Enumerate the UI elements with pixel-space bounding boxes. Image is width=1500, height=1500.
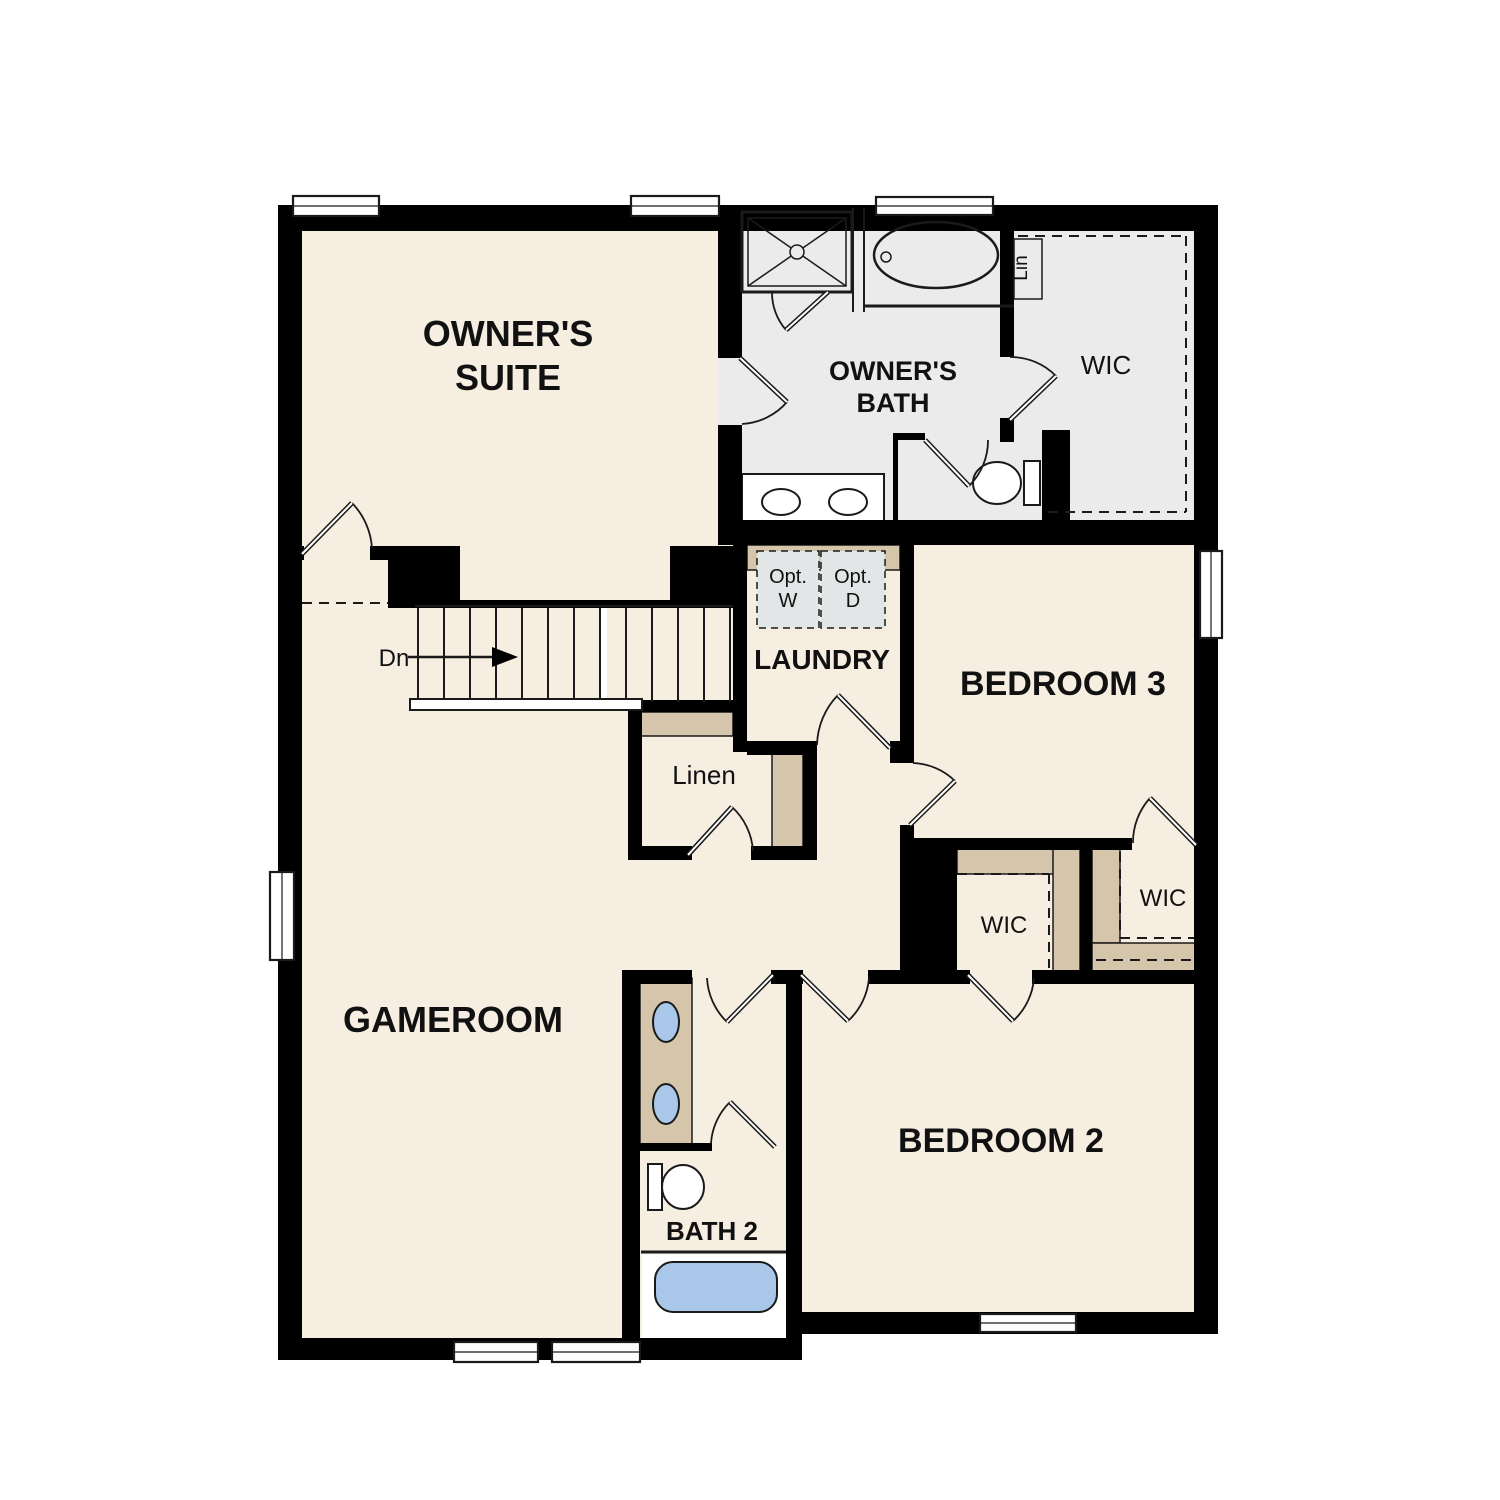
- wall: [278, 205, 302, 1360]
- wall: [718, 425, 742, 520]
- bath2-toilet-bowl: [662, 1165, 704, 1209]
- stair-stringer: [410, 699, 642, 710]
- wall: [733, 545, 747, 752]
- wall: [1032, 970, 1196, 984]
- floor-plan-svg: OWNER'SSUITEOWNER'SBATHWICLinOpt.WOpt.DL…: [0, 0, 1500, 1500]
- label-bath2: BATH 2: [666, 1216, 758, 1246]
- wall: [388, 546, 460, 608]
- label-gameroom: GAMEROOM: [343, 999, 563, 1040]
- shower-drain: [790, 245, 804, 259]
- wall: [278, 1338, 802, 1360]
- wall: [278, 546, 304, 560]
- wic3-shelf-left: [1092, 848, 1120, 943]
- window: [454, 1342, 538, 1362]
- wall: [893, 433, 925, 440]
- label-lin: Lin: [1011, 255, 1032, 280]
- wic2-shelf-right: [1053, 848, 1080, 972]
- wall: [900, 825, 914, 850]
- owners-sink: [762, 489, 800, 515]
- wall: [640, 1143, 712, 1151]
- linen-side-shelf: [772, 750, 803, 848]
- label-owners-bath-1: OWNER'S: [829, 356, 957, 386]
- label-owners-suite-2: SUITE: [455, 357, 561, 398]
- window: [876, 197, 993, 215]
- bath2-tub: [655, 1262, 777, 1312]
- label-bedroom3: BEDROOM 3: [960, 665, 1166, 703]
- wall: [868, 970, 970, 984]
- floors: [278, 205, 1218, 1360]
- owners-sink: [829, 489, 867, 515]
- wall: [718, 520, 1218, 545]
- owners-toilet-bowl: [973, 462, 1021, 504]
- wall: [1080, 848, 1092, 972]
- owners-toilet-tank: [1024, 461, 1040, 505]
- label-dn: Dn: [379, 645, 410, 672]
- label-owners-suite-1: OWNER'S: [423, 313, 594, 354]
- label-opt-w-2: W: [779, 590, 798, 612]
- wall: [628, 700, 642, 860]
- label-opt-d-2: D: [846, 590, 860, 612]
- wic3-shelf-bottom: [1092, 943, 1196, 972]
- stair-break: [601, 608, 607, 702]
- wall: [370, 546, 390, 560]
- wall: [1000, 231, 1014, 357]
- wall: [1194, 205, 1218, 1334]
- window: [631, 196, 719, 216]
- bath2-toilet-tank: [648, 1164, 662, 1210]
- label-opt-w-1: Opt.: [769, 566, 807, 588]
- label-wic-bedroom3: WIC: [1140, 885, 1187, 912]
- wall: [893, 433, 898, 530]
- wall: [718, 231, 742, 358]
- window: [980, 1314, 1076, 1332]
- wall: [771, 970, 803, 984]
- window: [552, 1342, 640, 1362]
- wall: [900, 848, 957, 972]
- floor-plan-page: OWNER'SSUITEOWNER'SBATHWICLinOpt.WOpt.DL…: [0, 0, 1500, 1500]
- label-wic-bedroom2: WIC: [981, 912, 1028, 939]
- label-opt-d-1: Opt.: [834, 566, 872, 588]
- bath2-sink: [653, 1084, 679, 1124]
- label-laundry: LAUNDRY: [754, 644, 890, 675]
- wall: [670, 546, 734, 608]
- wall: [622, 970, 640, 1360]
- label-linen: Linen: [672, 760, 736, 790]
- wall: [1042, 430, 1070, 530]
- label-owners-bath-2: BATH: [857, 388, 930, 418]
- label-owners-wic: WIC: [1081, 350, 1132, 380]
- window: [1200, 551, 1222, 638]
- label-bedroom2: BEDROOM 2: [898, 1122, 1104, 1160]
- window: [293, 196, 379, 216]
- wall: [640, 970, 692, 984]
- wall: [628, 846, 692, 860]
- bath2-sink: [653, 1002, 679, 1042]
- wall: [786, 970, 802, 1360]
- window: [270, 872, 294, 960]
- linen-shelf: [634, 712, 733, 736]
- wall: [900, 545, 914, 763]
- wall: [803, 750, 817, 860]
- wall: [912, 838, 1132, 850]
